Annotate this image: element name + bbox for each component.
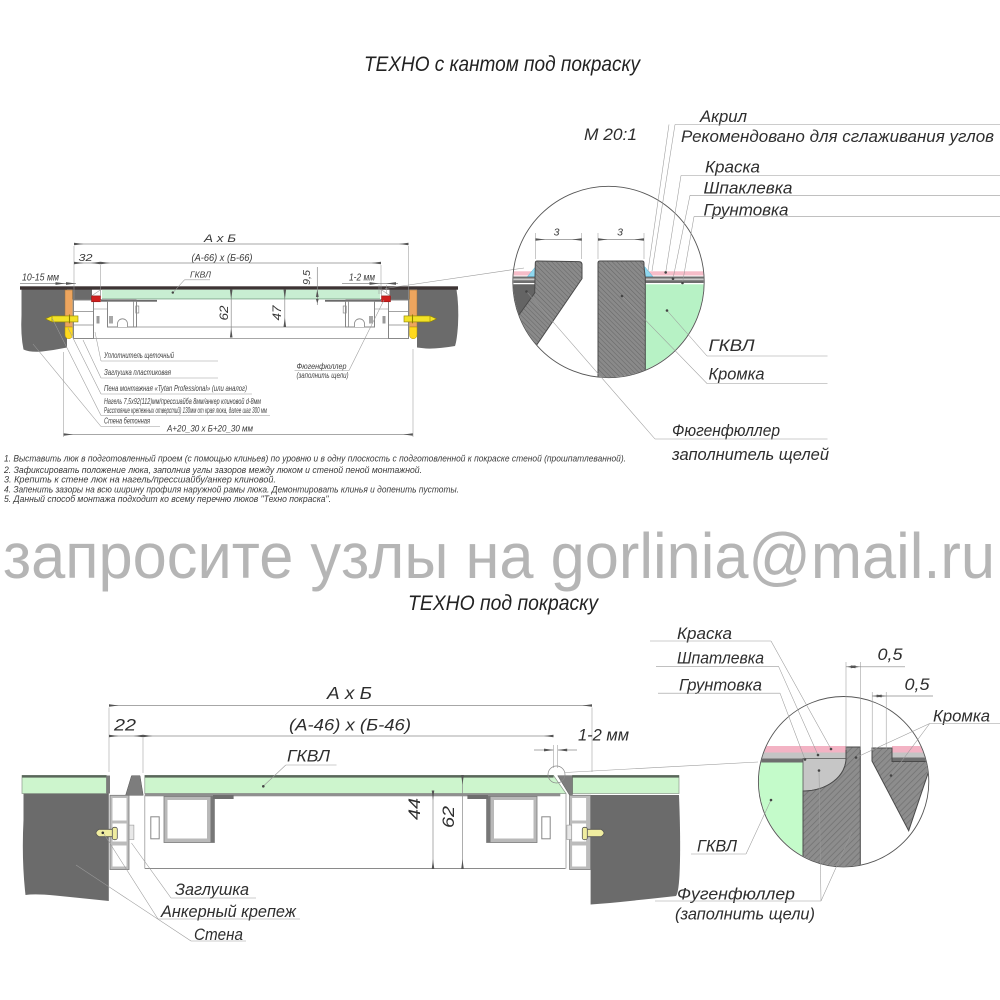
svg-text:(А-66) х (Б-66): (А-66) х (Б-66) bbox=[192, 252, 253, 264]
svg-text:(заполнить щели): (заполнить щели) bbox=[675, 905, 815, 924]
svg-text:ТЕХНО с кантом под покраску: ТЕХНО с кантом под покраску bbox=[364, 52, 641, 76]
svg-text:Грунтовка: Грунтовка bbox=[679, 676, 762, 695]
svg-text:5. Данный способ монтажа подхо: 5. Данный способ монтажа подходит ко все… bbox=[4, 494, 331, 504]
svg-text:Заглушка: Заглушка bbox=[175, 880, 249, 899]
svg-text:А+20_30 х Б+20_30 мм: А+20_30 х Б+20_30 мм bbox=[166, 424, 253, 434]
svg-text:Шпатлевка: Шпатлевка bbox=[677, 649, 764, 668]
svg-text:32: 32 bbox=[79, 252, 93, 264]
svg-text:62: 62 bbox=[219, 305, 231, 321]
svg-text:(А-46) х (Б-46): (А-46) х (Б-46) bbox=[289, 716, 411, 735]
svg-text:М 20:1: М 20:1 bbox=[584, 125, 637, 144]
svg-text:10-15 мм: 10-15 мм bbox=[22, 272, 59, 284]
svg-text:(заполнить щели): (заполнить щели) bbox=[297, 370, 349, 380]
svg-text:2. Зафиксировать положение люк: 2. Зафиксировать положение люка, заполни… bbox=[3, 465, 422, 475]
svg-text:ГКВЛ: ГКВЛ bbox=[190, 270, 211, 280]
svg-text:заполнитель щелей: заполнитель щелей bbox=[671, 445, 829, 464]
svg-text:Уплотнитель щеточный: Уплотнитель щеточный bbox=[103, 350, 174, 360]
svg-text:1-2 мм: 1-2 мм bbox=[578, 727, 629, 745]
svg-text:Краска: Краска bbox=[705, 157, 760, 176]
svg-text:А х Б: А х Б bbox=[203, 233, 236, 245]
svg-text:Рекомендовано для сглаживания: Рекомендовано для сглаживания углов bbox=[681, 127, 994, 146]
svg-text:Шпаклевка: Шпаклевка bbox=[704, 178, 793, 197]
svg-text:Кромка: Кромка bbox=[933, 707, 990, 726]
svg-text:1. Выставить люк в подготовлен: 1. Выставить люк в подготовленный проем … bbox=[4, 454, 626, 464]
svg-text:Фюгенфюллер: Фюгенфюллер bbox=[672, 421, 780, 440]
svg-text:ГКВЛ: ГКВЛ bbox=[709, 336, 755, 355]
svg-text:1-2 мм: 1-2 мм bbox=[349, 272, 375, 284]
svg-text:Пена монтажная «Tytan Professi: Пена монтажная «Tytan Professional» (или… bbox=[104, 383, 247, 393]
svg-text:9,5: 9,5 bbox=[301, 270, 313, 285]
svg-text:А х Б: А х Б bbox=[326, 683, 372, 703]
svg-text:Кромка: Кромка bbox=[709, 365, 765, 384]
svg-text:Фугенфюллер: Фугенфюллер bbox=[677, 885, 795, 904]
svg-text:44: 44 bbox=[406, 798, 424, 820]
svg-text:Анкерный крепеж: Анкерный крепеж bbox=[160, 902, 297, 921]
svg-text:Краска: Краска bbox=[677, 624, 732, 643]
svg-text:ТЕХНО под покраску: ТЕХНО под покраску bbox=[408, 591, 599, 615]
svg-text:Расстояние крепежных отверстий: Расстояние крепежных отверстий) 130мм от… bbox=[104, 405, 267, 415]
svg-text:ГКВЛ: ГКВЛ bbox=[697, 837, 737, 856]
svg-text:47: 47 bbox=[272, 305, 284, 321]
svg-text:ГКВЛ: ГКВЛ bbox=[287, 747, 330, 766]
svg-text:Акрил: Акрил bbox=[699, 107, 747, 126]
svg-text:3: 3 bbox=[617, 227, 623, 239]
svg-text:запросите узлы на gorlinia@mai: запросите узлы на gorlinia@mail.ru bbox=[3, 520, 995, 592]
svg-text:Стена бетонная: Стена бетонная bbox=[104, 416, 150, 426]
svg-text:22: 22 bbox=[113, 717, 136, 735]
svg-text:4. Запенить зазоры на всю шири: 4. Запенить зазоры на всю ширину профиля… bbox=[4, 484, 459, 494]
svg-text:62: 62 bbox=[440, 806, 458, 828]
svg-text:3. Крепить к стене люк на наге: 3. Крепить к стене люк на нагель/прессша… bbox=[4, 475, 276, 485]
svg-text:0,5: 0,5 bbox=[878, 646, 904, 664]
svg-text:Заглушка пластиковая: Заглушка пластиковая bbox=[104, 367, 171, 377]
svg-text:0,5: 0,5 bbox=[905, 676, 931, 694]
svg-text:3: 3 bbox=[554, 227, 560, 239]
